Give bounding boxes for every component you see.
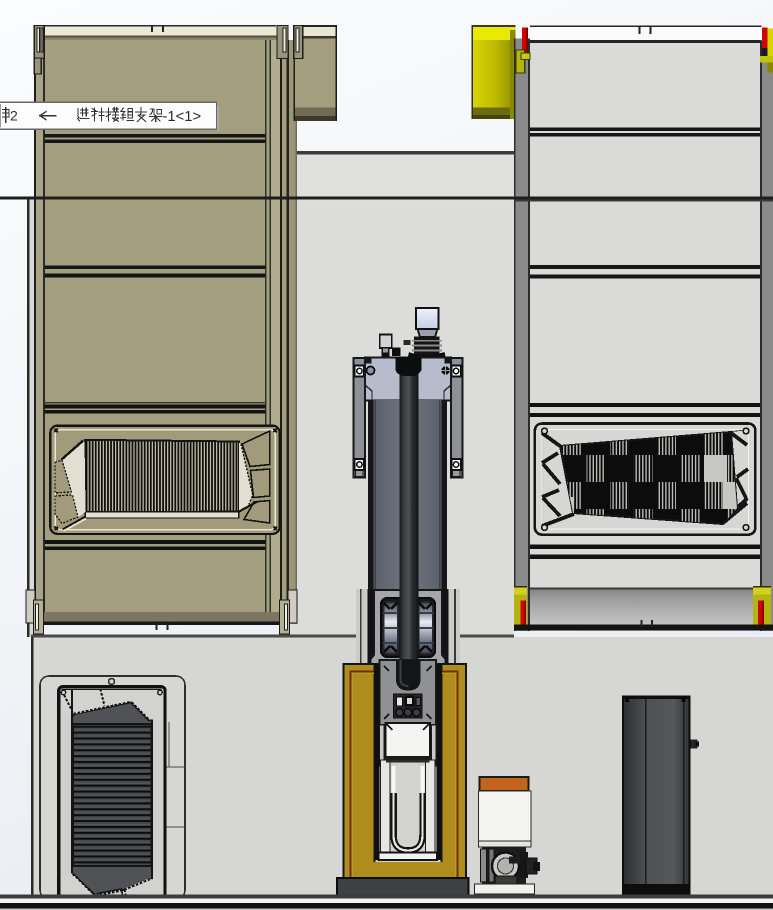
svg-text:-1<1>: -1<1> bbox=[163, 109, 202, 125]
svg-text:2: 2 bbox=[10, 108, 18, 124]
